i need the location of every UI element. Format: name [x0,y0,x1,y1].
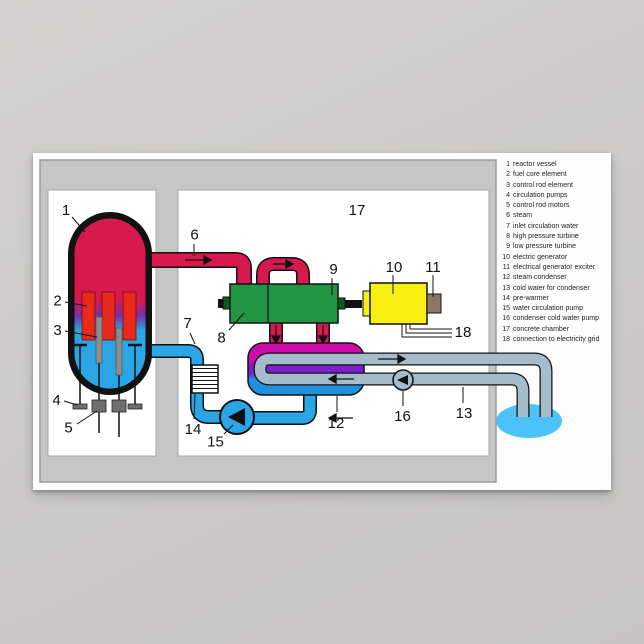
legend-item: 14pre-warmer [498,294,608,304]
label-12: 12 [328,415,345,432]
label-7: 7 [183,315,191,332]
label-2: 2 [53,293,61,310]
label-17: 17 [349,202,366,219]
poster: 1 2 3 4 5 6 7 8 9 10 11 12 13 14 15 16 1… [33,153,611,490]
label-8: 8 [217,330,225,347]
legend-item: 8high pressure turbine [498,232,608,242]
label-4: 4 [52,392,60,409]
generator-shaft [345,300,362,308]
fuel-core-elements [82,292,136,340]
legend-item: 13cold water for condenser [498,284,608,294]
generator-exciter [427,294,441,313]
label-11: 11 [425,259,441,276]
legend-item: 16condenser cold water pump [498,314,608,324]
legend-item: 12steam condenser [498,273,608,283]
turbine-left-bearing [223,297,230,309]
turbine-right-bearing [338,298,345,309]
pre-warmer [192,365,218,393]
label-5: 5 [64,420,72,437]
label-6: 6 [190,227,198,244]
label-10: 10 [386,259,403,276]
legend-item: 18connection to electricity grid [498,335,608,345]
label-9: 9 [329,261,337,278]
legend-item: 15water circulation pump [498,304,608,314]
label-13: 13 [456,405,473,422]
turbine-block [230,284,338,323]
electric-generator [370,283,427,324]
legend-item: 3control rod element [498,181,608,191]
legend-item: 5control rod motors [498,201,608,211]
label-3: 3 [53,322,61,339]
water-circulation-pump [220,400,254,434]
legend: 1reactor vessel 2fuel core element 3cont… [498,160,608,345]
condenser-cold-water-pump [393,370,413,390]
wall-background: 1 2 3 4 5 6 7 8 9 10 11 12 13 14 15 16 1… [0,0,644,644]
legend-item: 7inlet circulation water [498,222,608,232]
legend-item: 1reactor vessel [498,160,608,170]
legend-item: 4circulation pumps [498,191,608,201]
legend-item: 2fuel core element [498,170,608,180]
label-18: 18 [455,324,472,341]
legend-item: 9low pressure turbine [498,242,608,252]
legend-item: 10electric generator [498,253,608,263]
legend-item: 6steam [498,211,608,221]
label-16: 16 [394,408,411,425]
label-14: 14 [185,421,202,438]
shaft-coupling [363,291,370,316]
legend-item: 11electrical generator exciter [498,263,608,273]
label-1: 1 [62,202,70,219]
label-15: 15 [207,434,224,451]
legend-item: 17concrete chamber [498,325,608,335]
